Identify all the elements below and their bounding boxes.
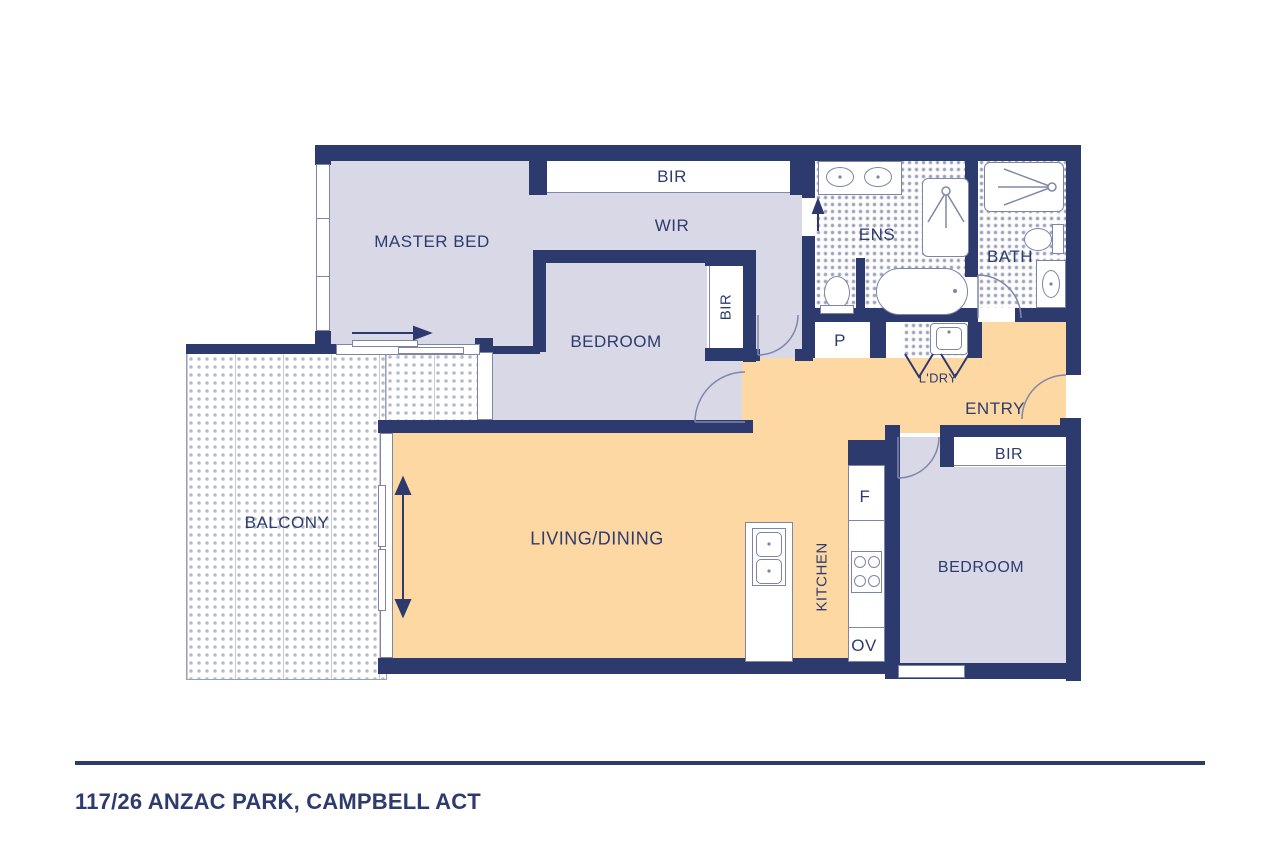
bedroom-ext-window bbox=[477, 352, 493, 420]
label-entry: ENTRY bbox=[965, 399, 1025, 419]
kitchen-counter-line2 bbox=[848, 627, 885, 628]
bath-shower bbox=[984, 162, 1064, 212]
property-address: 117/26 ANZAC PARK, CAMPBELL ACT bbox=[75, 789, 481, 815]
master-window-line2 bbox=[316, 276, 330, 277]
label-ens: ENS bbox=[859, 225, 895, 245]
living-slider-panel1 bbox=[378, 485, 386, 547]
laundry-trough-bowl bbox=[936, 327, 962, 350]
wall-birv-bottom-stub bbox=[705, 348, 745, 361]
wall-living-bottom bbox=[378, 658, 900, 674]
wall-bath-bottom bbox=[1015, 308, 1066, 322]
label-bir-top: BIR bbox=[657, 167, 687, 187]
ensuite-shower bbox=[922, 178, 969, 257]
kitchen-counter-line1 bbox=[848, 520, 885, 521]
room-entry-nook bbox=[982, 322, 1066, 358]
balcony-floor-ext bbox=[385, 352, 479, 422]
bath-toilet-tank bbox=[1052, 224, 1064, 254]
wall-ensuite-stub bbox=[856, 258, 865, 320]
label-bedroom2: BEDROOM bbox=[938, 559, 1024, 577]
master-slider-panel2 bbox=[398, 347, 464, 354]
room-bedroom2 bbox=[900, 437, 1066, 665]
label-bedroom-center: BEDROOM bbox=[570, 332, 661, 352]
ensuite-toilet-base bbox=[820, 305, 854, 314]
wall-bedroom-right bbox=[743, 252, 756, 362]
floorplan-canvas: MASTER BED BIR WIR BEDROOM BIR ENS BATH … bbox=[0, 0, 1280, 853]
wall-bir-top-left-stub bbox=[529, 159, 547, 195]
label-pantry: P bbox=[834, 331, 846, 351]
pantry-laundry-gap bbox=[886, 322, 903, 358]
room-entry-hall bbox=[742, 358, 1066, 433]
wall-bedroom-bottom bbox=[378, 420, 753, 433]
wall-left-upper bbox=[315, 145, 331, 165]
label-balcony: BALCONY bbox=[245, 513, 330, 533]
ensuite-basin-left bbox=[826, 167, 854, 187]
wall-balcony-top bbox=[186, 344, 336, 354]
bir-top-line bbox=[547, 192, 790, 193]
label-bir-bedroom2: BIR bbox=[995, 446, 1023, 464]
wall-pantry-right bbox=[870, 322, 886, 358]
master-window-line1 bbox=[316, 218, 330, 219]
kitchen-sink-bowl1 bbox=[756, 532, 782, 557]
label-kitchen: KITCHEN bbox=[814, 542, 831, 611]
wall-bedroom-left bbox=[533, 250, 546, 352]
wall-corridor-door-pillar-left bbox=[746, 349, 760, 361]
label-bath: BATH bbox=[987, 247, 1033, 267]
label-oven: OV bbox=[851, 636, 877, 656]
bath-basin bbox=[1042, 270, 1060, 298]
ensuite-door-opening bbox=[802, 198, 815, 236]
entry-door-opening bbox=[1066, 375, 1081, 418]
master-slider-panel1 bbox=[352, 340, 418, 347]
wall-bir2-stub bbox=[940, 437, 954, 467]
living-slider-panel2 bbox=[378, 549, 386, 611]
kitchen-cooktop bbox=[851, 551, 882, 593]
ensuite-basin-right bbox=[864, 167, 892, 187]
label-living-dining: LIVING/DINING bbox=[530, 529, 664, 550]
kitchen-sink-bowl2 bbox=[756, 559, 782, 584]
ensuite-bathtub bbox=[876, 268, 968, 315]
master-window bbox=[316, 164, 330, 331]
wall-bedroom2-top-b bbox=[940, 425, 1066, 437]
footer-divider bbox=[75, 761, 1205, 765]
label-wir: WIR bbox=[655, 216, 690, 236]
label-fridge: F bbox=[860, 487, 871, 507]
room-bedroom-center-ext bbox=[493, 352, 533, 420]
label-laundry: L'DRY bbox=[919, 371, 957, 386]
wall-pantry-left bbox=[802, 322, 815, 358]
wall-laundry-right bbox=[968, 322, 982, 358]
wall-kitchen-cap bbox=[848, 440, 885, 465]
wall-birv-top-stub bbox=[705, 252, 745, 266]
bir2-line bbox=[954, 465, 1066, 466]
bedroom2-window bbox=[898, 665, 965, 678]
label-bir-center: BIR bbox=[718, 294, 735, 321]
wall-bedroom2-left bbox=[885, 425, 900, 678]
label-master-bed: MASTER BED bbox=[374, 232, 490, 252]
bir-center-line bbox=[709, 266, 710, 348]
